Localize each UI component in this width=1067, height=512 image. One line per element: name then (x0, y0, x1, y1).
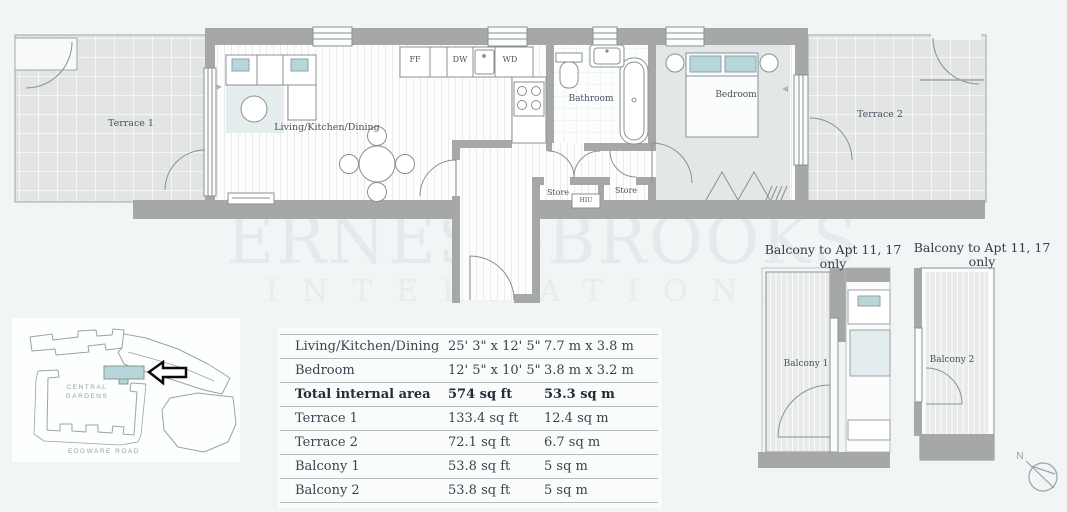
metric-dimension: 3.8 m x 3.2 m (544, 363, 658, 378)
kitchen-sink (475, 50, 494, 74)
store1-label: Store (538, 189, 578, 198)
table-row: Living/Kitchen/Dining 25' 3" x 12' 5" 7.… (280, 334, 658, 359)
window (666, 27, 704, 46)
north-compass-icon (1026, 461, 1057, 491)
room-name: Balcony 1 (295, 459, 448, 474)
living-kitchen-dining-label: Living/Kitchen/Dining (262, 123, 392, 133)
metric-dimension: 7.7 m x 3.8 m (544, 339, 658, 354)
balcony2-label: Balcony 2 (912, 356, 992, 366)
balcony1-glazing (830, 318, 838, 452)
dishwasher-label: DW (443, 56, 477, 65)
sofa-chaise (288, 85, 316, 120)
sofa-cushion (291, 59, 308, 71)
central-gardens-line2: GARDENS (56, 392, 118, 401)
table-row: Balcony 1 53.8 sq ft 5 sq m (280, 455, 658, 479)
imperial-dimension: 25' 3" x 12' 5" (448, 339, 544, 354)
room-name: Balcony 2 (295, 483, 448, 498)
pillow (690, 56, 721, 72)
hall-floor (460, 148, 532, 300)
north-label: N (1012, 452, 1028, 461)
sliding-door-terrace2 (794, 75, 808, 165)
pillow (725, 56, 756, 72)
dining-table (359, 146, 395, 182)
imperial-dimension: 574 sq ft (448, 387, 544, 402)
room-name: Terrace 1 (295, 411, 448, 426)
terrace1-label: Terrace 1 (86, 119, 176, 129)
metric-dimension: 5 sq m (544, 459, 658, 474)
balcony2-title: Balcony to Apt 11, 17 only (901, 241, 1063, 269)
imperial-dimension: 72.1 sq ft (448, 435, 544, 450)
imperial-dimension: 133.4 sq ft (448, 411, 544, 426)
coffee-table (241, 96, 267, 122)
table-row: Balcony 2 53.8 sq ft 5 sq m (280, 479, 658, 503)
window (313, 27, 352, 46)
fridge-freezer-label: FF (398, 56, 432, 65)
floorplan-page: ERNEST-BROOKS INTERNATIONAL (0, 0, 1067, 512)
metric-dimension: 6.7 sq m (544, 435, 658, 450)
toilet (560, 62, 578, 88)
terrace1-door-recess (15, 38, 77, 70)
balcony1-label: Balcony 1 (766, 360, 846, 370)
highlighted-unit (104, 366, 144, 379)
hob (514, 82, 544, 116)
terrace2-label: Terrace 2 (835, 110, 925, 120)
window (488, 27, 527, 46)
dimensions-table: Living/Kitchen/Dining 25' 3" x 12' 5" 7.… (280, 334, 658, 503)
room-name: Terrace 2 (295, 435, 448, 450)
room-name: Bedroom (295, 363, 448, 378)
table-row: Terrace 1 133.4 sq ft 12.4 sq m (280, 407, 658, 431)
store2-label: Store (606, 187, 646, 196)
window (593, 27, 617, 46)
table-row: Bedroom 12' 5" x 10' 5" 3.8 m x 3.2 m (280, 359, 658, 383)
hiu-label: HIU (572, 198, 600, 205)
balcony1-title: Balcony to Apt 11, 17 only (752, 243, 914, 271)
table-row-total: Total internal area 574 sq ft 53.3 sq m (280, 383, 658, 407)
imperial-dimension: 53.8 sq ft (448, 483, 544, 498)
dining-chair (340, 155, 359, 174)
bedroom-label: Bedroom (701, 91, 771, 101)
bedside-table (760, 54, 778, 72)
central-gardens-line1: CENTRAL (56, 383, 118, 392)
terrace2-door-gap (931, 32, 981, 40)
metric-dimension: 53.3 sq m (544, 387, 658, 402)
sink-tap-icon (483, 55, 486, 58)
room-name: Total internal area (295, 387, 448, 402)
washer-dryer-label: WD (493, 56, 527, 65)
room-name: Living/Kitchen/Dining (295, 339, 448, 354)
bathtub-drain (632, 98, 636, 102)
sliding-door-terrace1 (204, 68, 216, 196)
bathroom-label: Bathroom (556, 95, 626, 105)
toilet-cistern (556, 53, 582, 62)
edgware-road-label: EDGWARE ROAD (50, 447, 158, 456)
table-row: Terrace 2 72.1 sq ft 6.7 sq m (280, 431, 658, 455)
metric-dimension: 5 sq m (544, 483, 658, 498)
dining-chair (396, 155, 415, 174)
central-gardens-label: CENTRAL GARDENS (56, 383, 118, 401)
sofa-cushion (232, 59, 249, 71)
imperial-dimension: 53.8 sq ft (448, 459, 544, 474)
metric-dimension: 12.4 sq m (544, 411, 658, 426)
bedside-table (666, 54, 684, 72)
balcony1-interior (846, 268, 890, 452)
imperial-dimension: 12' 5" x 10' 5" (448, 363, 544, 378)
dining-chair (368, 183, 387, 202)
